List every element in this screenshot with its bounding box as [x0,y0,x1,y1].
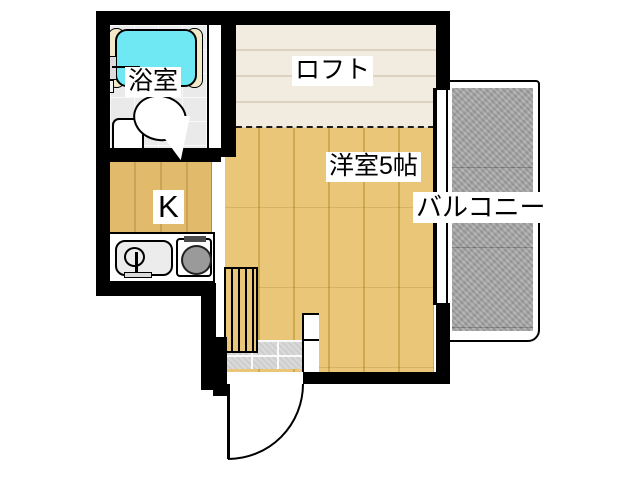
stove-control-bar [184,236,206,242]
loft-boundary-dashed-line [236,126,434,128]
sink-faucet-icon [135,252,138,274]
wall-top [96,11,450,25]
entrance-step [302,313,319,372]
bathroom-label: 浴室 [125,67,181,97]
balcony-label: バルコニー [413,192,548,223]
wall-right-lower [436,303,450,384]
loft-label: ロフト [292,56,373,86]
main-room-label: 洋室5帖 [326,152,421,182]
wall-right-upper [436,11,450,90]
wall-bathroom-bottom [96,148,221,162]
wall-bottom [303,372,450,384]
stove-burner-icon [181,245,212,275]
loft-ladder-icon [224,267,258,353]
wall-bathroom-loft [221,25,236,157]
entrance-step-line [303,339,319,341]
wall-kitchen-bottom [96,283,216,296]
sink-faucet-base [124,272,152,278]
kitchen-label: K [153,190,184,224]
wall-entry-side [213,337,227,396]
floor-plan: 浴室 ロフト 洋室5帖 バルコニー K [0,0,640,480]
